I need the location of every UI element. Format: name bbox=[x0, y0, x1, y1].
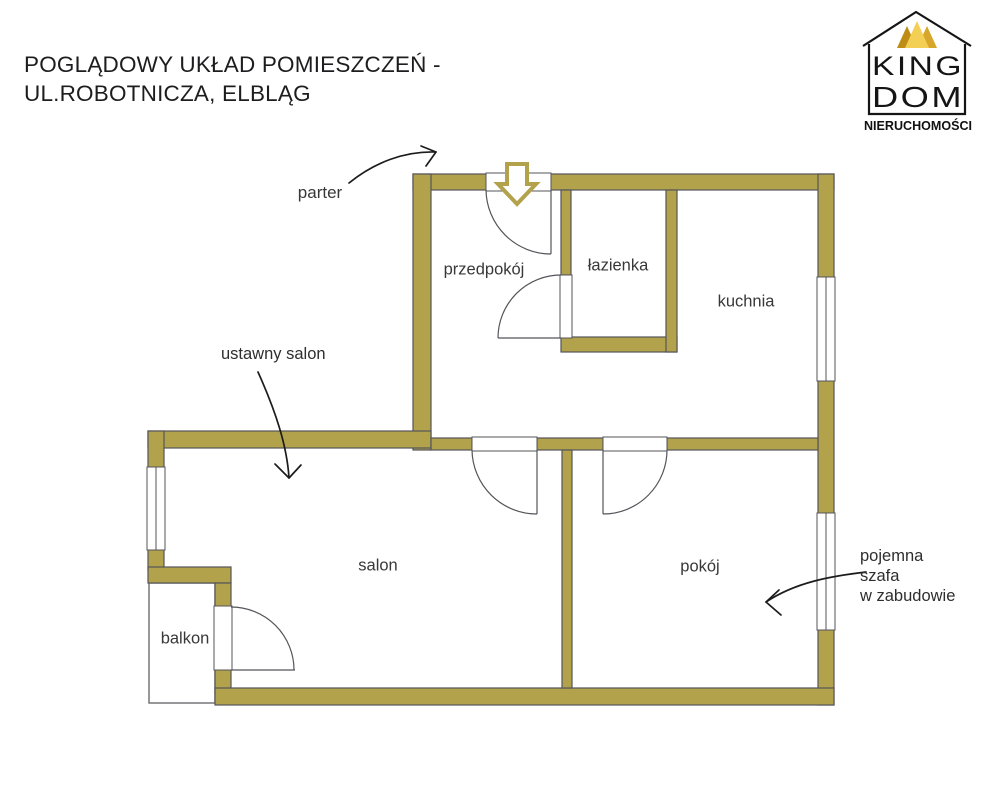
floor-plan bbox=[0, 0, 982, 800]
page-title: POGLĄDOWY UKŁAD POMIESZCZEŃ - UL.ROBOTNI… bbox=[24, 50, 441, 108]
wall-segment bbox=[561, 190, 571, 275]
logo-subtitle: NIERUCHOMOŚCI bbox=[864, 118, 972, 133]
living-note-arrow bbox=[258, 372, 289, 478]
room-label-bathroom: łazienka bbox=[588, 257, 649, 276]
logo-word-top: KING bbox=[872, 51, 964, 81]
room-label-balcony: balkon bbox=[161, 630, 210, 649]
living-door-swing bbox=[472, 450, 537, 514]
screenshot-root: POGLĄDOWY UKŁAD POMIESZCZEŃ - UL.ROBOTNI… bbox=[0, 0, 982, 800]
opening-balcony bbox=[214, 606, 232, 670]
room-door-swing bbox=[603, 450, 667, 514]
bathroom-door-swing bbox=[498, 275, 561, 338]
wall-segment bbox=[413, 174, 431, 450]
wall-segment bbox=[148, 431, 431, 448]
wall-segment bbox=[666, 190, 677, 352]
entrance-arrow-icon bbox=[498, 164, 536, 204]
floor-annotation: parter bbox=[298, 183, 342, 203]
wall-segment bbox=[537, 438, 603, 450]
room-label-hall: przedpokój bbox=[444, 261, 525, 280]
wardrobe-note: pojemna szafa w zabudowie bbox=[860, 546, 955, 606]
opening-bathroom bbox=[560, 275, 572, 338]
room-label-living: salon bbox=[358, 557, 397, 576]
living-note: ustawny salon bbox=[221, 344, 326, 364]
opening-living bbox=[472, 437, 537, 451]
kingdom-logo-graphic: KING DOM NIERUCHOMOŚCI bbox=[848, 6, 978, 138]
wall-segment bbox=[215, 688, 834, 705]
wall-segment bbox=[431, 438, 472, 450]
kingdom-logo: KING DOM NIERUCHOMOŚCI bbox=[848, 6, 978, 138]
wall-segment bbox=[413, 174, 834, 190]
wall-segment bbox=[667, 438, 818, 450]
wardrobe-note-arrow bbox=[766, 572, 866, 602]
crown-icon bbox=[897, 21, 937, 48]
balcony-door-swing bbox=[231, 607, 294, 670]
parter-arrowhead bbox=[421, 146, 436, 166]
wall-segment bbox=[561, 337, 677, 352]
opening-room bbox=[603, 437, 667, 451]
wall-segment bbox=[562, 450, 572, 688]
wall-segment bbox=[148, 567, 231, 583]
logo-word-bottom: DOM bbox=[872, 82, 964, 114]
room-label-room: pokój bbox=[680, 558, 719, 577]
room-label-kitchen: kuchnia bbox=[718, 293, 775, 312]
door-openings bbox=[214, 173, 667, 670]
windows bbox=[147, 277, 835, 630]
